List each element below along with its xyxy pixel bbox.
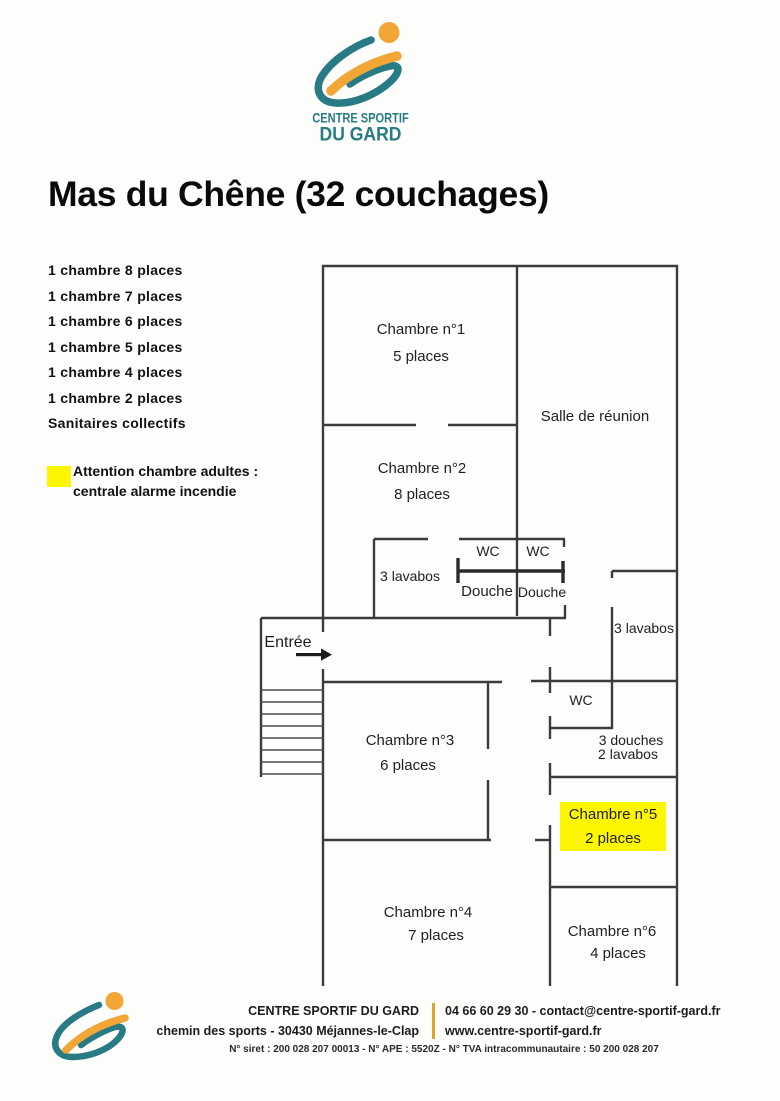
svg-text:Chambre n°4: Chambre n°4 <box>384 904 473 921</box>
svg-text:Chambre n°6: Chambre n°6 <box>568 923 657 940</box>
svg-text:3 lavabos: 3 lavabos <box>380 568 440 584</box>
svg-text:Chambre n°5: Chambre n°5 <box>569 806 658 823</box>
svg-text:Douche: Douche <box>461 583 513 600</box>
svg-text:2 lavabos: 2 lavabos <box>598 746 658 762</box>
svg-text:WC: WC <box>476 543 499 559</box>
svg-text:Douche: Douche <box>518 584 566 600</box>
svg-text:Chambre n°3: Chambre n°3 <box>366 732 455 749</box>
svg-text:Chambre n°2: Chambre n°2 <box>378 460 467 477</box>
svg-text:Entrée: Entrée <box>264 634 311 651</box>
svg-text:2 places: 2 places <box>585 830 641 847</box>
svg-text:3 lavabos: 3 lavabos <box>614 620 674 636</box>
svg-text:4 places: 4 places <box>590 945 646 962</box>
svg-text:5 places: 5 places <box>393 348 449 365</box>
svg-text:WC: WC <box>569 692 592 708</box>
svg-text:6 places: 6 places <box>380 757 436 774</box>
svg-text:7 places: 7 places <box>408 927 464 944</box>
svg-text:Chambre n°1: Chambre n°1 <box>377 321 466 338</box>
svg-text:Salle de réunion: Salle de réunion <box>541 408 649 425</box>
svg-text:WC: WC <box>526 543 549 559</box>
svg-text:8 places: 8 places <box>394 486 450 503</box>
